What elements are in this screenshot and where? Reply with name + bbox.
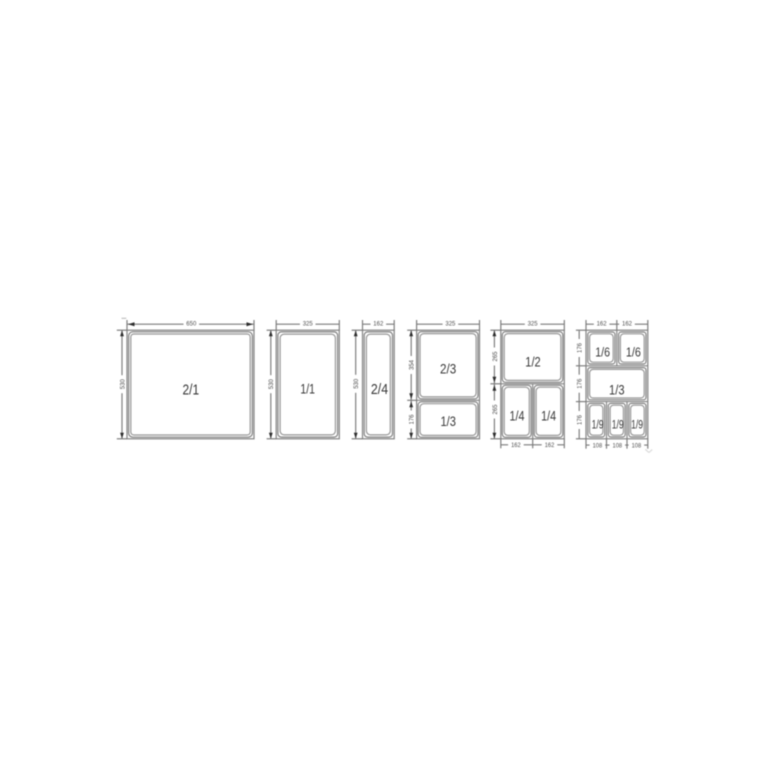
svg-text:1/4: 1/4 (510, 408, 525, 423)
svg-text:1/1: 1/1 (300, 381, 315, 396)
svg-text:1/9: 1/9 (631, 420, 643, 432)
svg-text:265: 265 (492, 351, 499, 361)
svg-text:1/2: 1/2 (525, 355, 540, 370)
svg-text:162: 162 (373, 321, 383, 328)
svg-text:1/9: 1/9 (612, 420, 624, 432)
svg-text:162: 162 (511, 442, 521, 449)
svg-text:325: 325 (528, 321, 538, 328)
svg-text:1/3: 1/3 (609, 383, 625, 398)
svg-text:176: 176 (577, 415, 584, 425)
svg-text:1/6: 1/6 (595, 345, 610, 360)
svg-text:530: 530 (119, 379, 126, 389)
svg-text:325: 325 (303, 321, 313, 328)
svg-text:176: 176 (577, 343, 584, 353)
svg-text:530: 530 (353, 378, 360, 388)
svg-text:2/1: 2/1 (183, 383, 200, 399)
svg-text:265: 265 (492, 404, 499, 414)
svg-text:2/4: 2/4 (371, 382, 388, 398)
svg-text:162: 162 (545, 442, 555, 449)
svg-text:176: 176 (577, 378, 584, 388)
svg-text:162: 162 (597, 321, 607, 328)
svg-text:1/9: 1/9 (592, 420, 604, 432)
svg-text:176: 176 (409, 414, 416, 424)
svg-text:108: 108 (613, 442, 623, 449)
svg-text:108: 108 (632, 442, 642, 449)
svg-text:108: 108 (593, 442, 603, 449)
svg-text:2/3: 2/3 (440, 362, 456, 377)
svg-text:530: 530 (268, 379, 275, 389)
svg-text:650: 650 (186, 321, 196, 328)
svg-text:354: 354 (409, 360, 416, 370)
svg-text:1/4: 1/4 (541, 408, 556, 423)
svg-text:1/3: 1/3 (440, 414, 456, 429)
svg-text:1/6: 1/6 (626, 345, 641, 360)
svg-text:162: 162 (622, 321, 632, 328)
svg-text:325: 325 (445, 321, 455, 328)
